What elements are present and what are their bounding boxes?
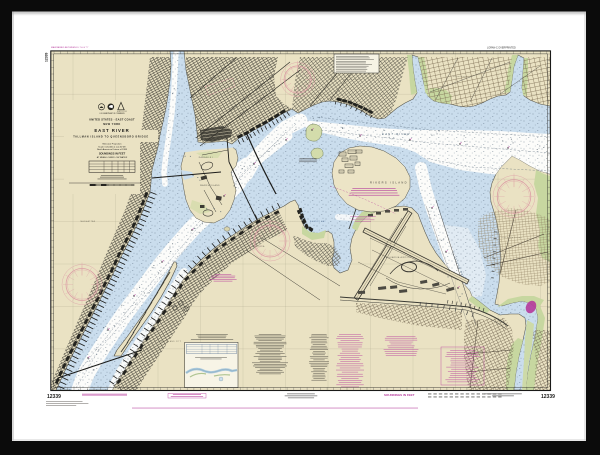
- svg-text:UNITED STATES - EAST COAST: UNITED STATES - EAST COAST: [89, 118, 135, 122]
- svg-text:12339: 12339: [541, 394, 555, 400]
- svg-text:SOUNDVIEW: SOUNDVIEW: [453, 76, 468, 78]
- svg-text:12339: 12339: [45, 52, 49, 62]
- svg-text:AT MEAN LOWER LOW WATER: AT MEAN LOWER LOW WATER: [97, 156, 128, 159]
- svg-text:WARDS ISLAND: WARDS ISLAND: [200, 184, 220, 187]
- svg-text:12339: 12339: [47, 394, 61, 400]
- svg-text:LORAN-C OVERPRINTED: LORAN-C OVERPRINTED: [487, 47, 516, 50]
- svg-text:BOWERY BAY: BOWERY BAY: [310, 220, 326, 223]
- svg-text:MANHATTAN: MANHATTAN: [80, 220, 95, 223]
- svg-text:HARLEM: HARLEM: [117, 110, 127, 113]
- svg-text:PORT MORRIS: PORT MORRIS: [223, 91, 241, 93]
- svg-text:LONG ISLAND CITY: LONG ISLAND CITY: [158, 340, 181, 343]
- svg-text:CORONA: CORONA: [473, 350, 484, 353]
- svg-text:RIKERS ISLAND: RIKERS ISLAND: [370, 181, 408, 185]
- svg-text:LA GUARDIA AIRPORT: LA GUARDIA AIRPORT: [384, 256, 412, 259]
- svg-text:MAINTAINED BETWEEN FL 7 & G "1: MAINTAINED BETWEEN FL 7 & G "1": [51, 46, 89, 49]
- svg-text:STEINWAY: STEINWAY: [302, 250, 315, 253]
- svg-text:ASTORIA: ASTORIA: [253, 245, 265, 248]
- svg-text:Scale 1:20,000 at Lat 40°48': Scale 1:20,000 at Lat 40°48': [98, 145, 126, 148]
- svg-text:HUNTS POINT: HUNTS POINT: [343, 79, 361, 81]
- svg-text:TALLMAN ISLAND TO QUEENSBORO B: TALLMAN ISLAND TO QUEENSBORO BRIDGE: [73, 136, 149, 139]
- svg-text:SOUNDINGS IN FEET: SOUNDINGS IN FEET: [99, 152, 126, 156]
- svg-text:Mercator Projection: Mercator Projection: [103, 143, 123, 146]
- svg-text:North American Datum of 1983: North American Datum of 1983: [97, 148, 128, 151]
- svg-text:RANDALLS I: RANDALLS I: [199, 156, 214, 159]
- svg-text:COLLEGE POINT: COLLEGE POINT: [502, 237, 523, 239]
- svg-text:EAST RIVER: EAST RIVER: [94, 128, 129, 133]
- svg-text:EAST RIVER: EAST RIVER: [382, 132, 411, 136]
- svg-text:SOUNDINGS IN FEET: SOUNDINGS IN FEET: [384, 393, 415, 397]
- svg-text:NEW YORK: NEW YORK: [103, 122, 120, 126]
